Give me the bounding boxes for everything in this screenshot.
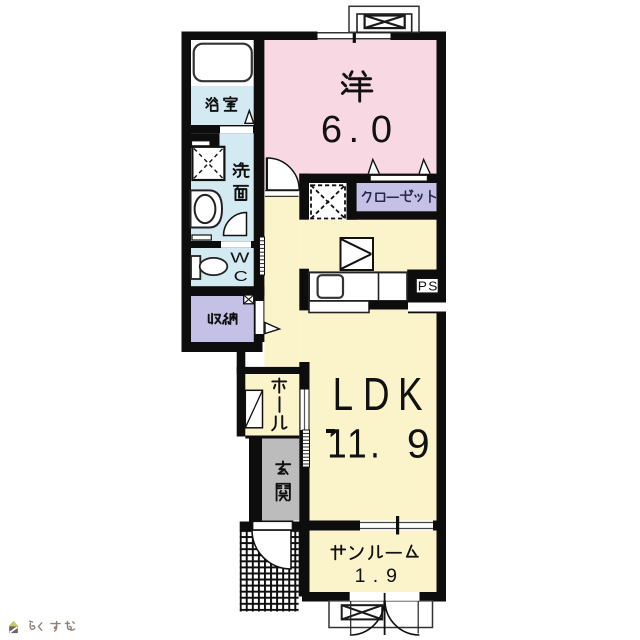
svg-text:1: 1 — [327, 422, 346, 467]
svg-text:C: C — [234, 267, 248, 284]
svg-text:1: 1 — [347, 422, 366, 467]
svg-text:9: 9 — [407, 421, 430, 467]
svg-text:.: . — [373, 565, 378, 587]
svg-text:0: 0 — [371, 109, 392, 151]
svg-text:.: . — [370, 422, 380, 467]
svg-text:.: . — [349, 109, 360, 151]
svg-text:1: 1 — [355, 565, 366, 587]
svg-text:D: D — [363, 368, 390, 420]
svg-text:6: 6 — [321, 109, 342, 151]
svg-text:S: S — [428, 279, 437, 293]
svg-text:L: L — [333, 368, 353, 420]
svg-text:W: W — [230, 249, 250, 265]
svg-text:P: P — [418, 279, 427, 293]
svg-text:9: 9 — [386, 565, 397, 587]
svg-text:K: K — [398, 368, 423, 420]
